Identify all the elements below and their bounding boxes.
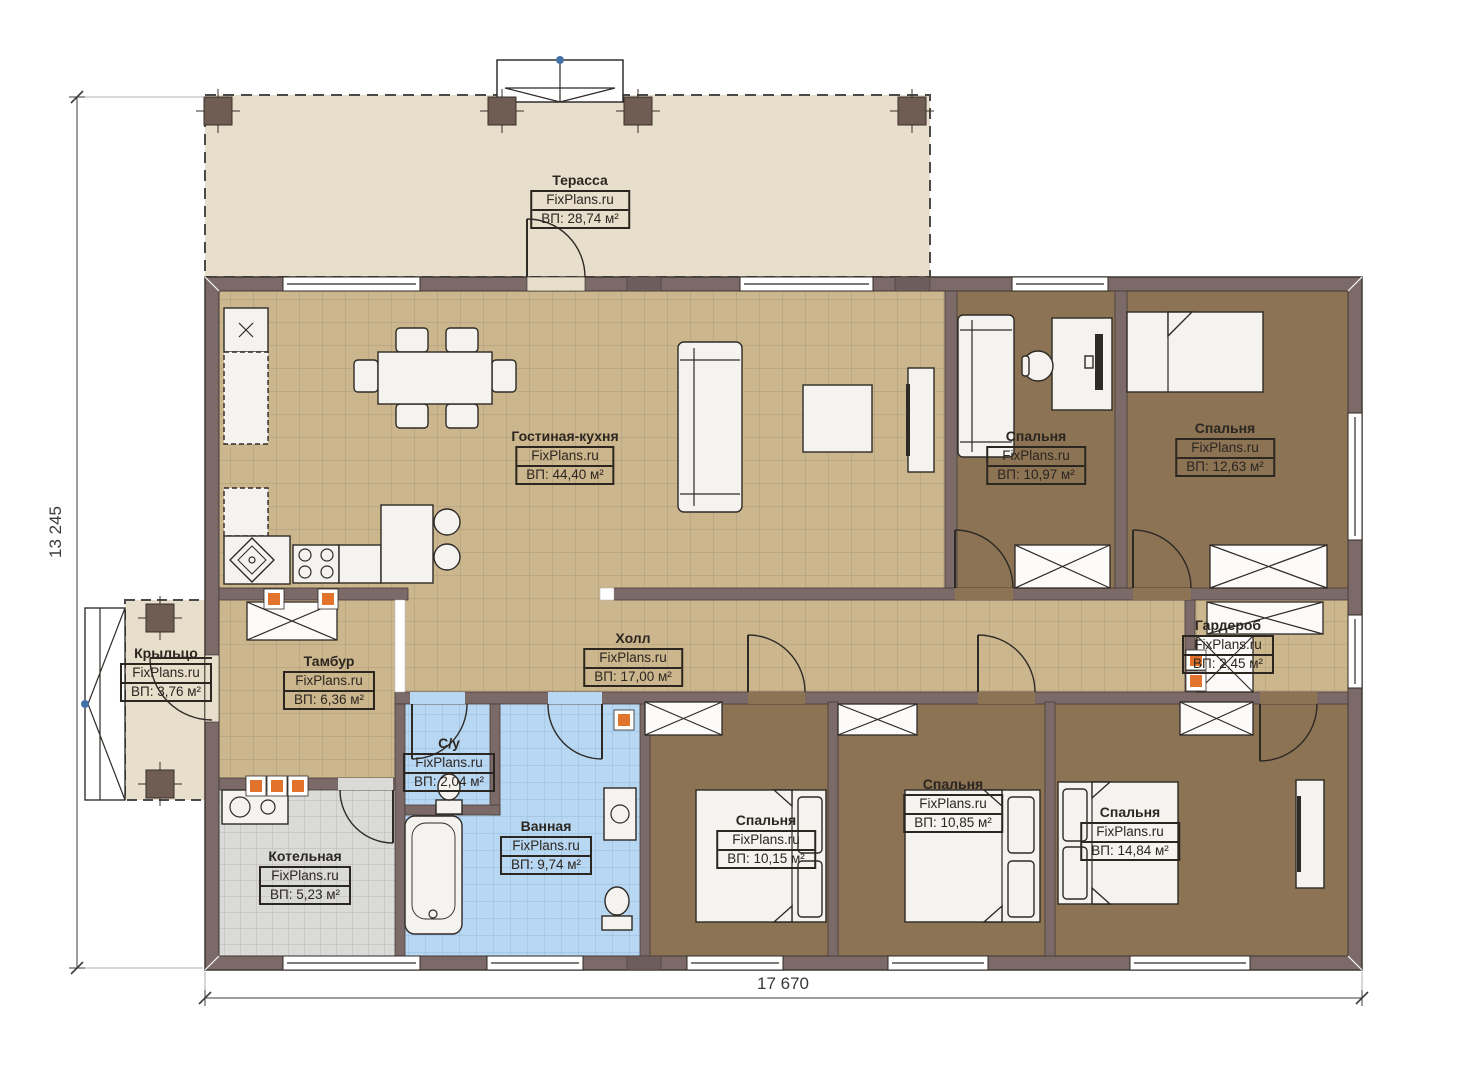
- room-name: Крыльцо: [120, 645, 212, 661]
- room-area: ВП: 28,74 м²: [532, 211, 628, 228]
- room-name: Спальня: [716, 812, 816, 828]
- room-info-box: FixPlans.ru ВП: 17,00 м²: [583, 648, 683, 687]
- terrace-stairs: [497, 56, 623, 102]
- room-area: ВП: 17,00 м²: [585, 669, 681, 686]
- pillow: [1008, 861, 1034, 917]
- wardrobe: [645, 702, 722, 735]
- room-info-box: FixPlans.ru ВП: 44,40 м²: [515, 446, 615, 485]
- room-info-box: FixPlans.ru ВП: 5,23 м²: [259, 866, 351, 905]
- room-label-boiler: Котельная FixPlans.ru ВП: 5,23 м²: [259, 848, 351, 905]
- toilet: [602, 887, 632, 930]
- stove: [293, 545, 339, 583]
- watermark: FixPlans.ru: [517, 448, 613, 467]
- room-info-box: FixPlans.ru ВП: 3,76 м²: [120, 663, 212, 702]
- bar-stool: [434, 509, 460, 535]
- office-chair: [1022, 351, 1053, 381]
- room-label-terrace: Терасса FixPlans.ru ВП: 28,74 м²: [530, 172, 630, 229]
- watermark: FixPlans.ru: [532, 192, 628, 211]
- room-info-box: FixPlans.ru ВП: 9,74 м²: [500, 836, 592, 875]
- tv-stand: [1296, 780, 1324, 888]
- tv-stand: [906, 368, 934, 472]
- terrace-area: [196, 56, 934, 277]
- fridge: [224, 308, 268, 352]
- monitor-icon: [1095, 334, 1103, 390]
- room-area: ВП: 6,36 м²: [285, 692, 373, 709]
- wardrobe: [1180, 702, 1253, 735]
- chair: [492, 360, 516, 392]
- chair: [446, 404, 478, 428]
- watermark: FixPlans.ru: [261, 868, 349, 887]
- watermark: FixPlans.ru: [988, 448, 1084, 467]
- dimension-height-label: 13 245: [46, 506, 66, 558]
- vent-icon: [614, 710, 634, 730]
- pillow: [1008, 797, 1034, 853]
- room-name: С/у: [403, 735, 495, 751]
- single-bed: [1127, 312, 1263, 392]
- room-name: Спальня: [986, 428, 1086, 444]
- bedroom-top-2-furniture: [1127, 312, 1263, 392]
- wardrobe: [1015, 545, 1110, 588]
- room-area: ВП: 12,63 м²: [1177, 459, 1273, 476]
- window: [1348, 413, 1362, 540]
- room-name: Гостиная-кухня: [511, 428, 618, 444]
- window: [888, 956, 988, 970]
- porch-steps: [81, 608, 125, 800]
- room-label-bathroom: Ванная FixPlans.ru ВП: 9,74 м²: [500, 818, 592, 875]
- room-area: ВП: 5,23 м²: [261, 887, 349, 904]
- room-name: Спальня: [1080, 804, 1180, 820]
- watermark: FixPlans.ru: [905, 796, 1001, 815]
- chair: [396, 328, 428, 352]
- vent-icon: [264, 589, 284, 609]
- room-label-bedroom-top-1: Спальня FixPlans.ru ВП: 10,97 м²: [986, 428, 1086, 485]
- room-name: Спальня: [903, 776, 1003, 792]
- room-area: ВП: 10,15 м²: [718, 851, 814, 868]
- watermark: FixPlans.ru: [718, 832, 814, 851]
- room-name: Тамбур: [283, 653, 375, 669]
- watermark: FixPlans.ru: [502, 838, 590, 857]
- washing-machine: [604, 788, 636, 840]
- watermark: FixPlans.ru: [122, 665, 210, 684]
- watermark: FixPlans.ru: [405, 755, 493, 774]
- tv-icon: [1297, 796, 1301, 872]
- pillow: [798, 861, 822, 917]
- room-area: ВП: 2,04 м²: [405, 774, 493, 791]
- room-label-wardrobe: Гардероб FixPlans.ru ВП: 2,45 м²: [1182, 617, 1274, 674]
- room-name: Спальня: [1175, 420, 1275, 436]
- kitchen-counter: [224, 352, 268, 444]
- room-info-box: FixPlans.ru ВП: 6,36 м²: [283, 671, 375, 710]
- room-info-box: FixPlans.ru ВП: 14,84 м²: [1080, 822, 1180, 861]
- chair: [354, 360, 378, 392]
- kitchen-counter: [339, 545, 381, 583]
- room-area: ВП: 2,45 м²: [1184, 656, 1272, 673]
- wardrobe: [1210, 545, 1327, 588]
- tv-icon: [906, 384, 910, 456]
- room-name: Котельная: [259, 848, 351, 864]
- room-label-hall: Холл FixPlans.ru ВП: 17,00 м²: [583, 630, 683, 687]
- bathtub: [405, 816, 462, 934]
- room-area: ВП: 10,97 м²: [988, 467, 1084, 484]
- kitchen-counter: [224, 488, 268, 536]
- room-name: Холл: [583, 630, 683, 646]
- marker-dot: [81, 700, 89, 708]
- room-area: ВП: 3,76 м²: [122, 684, 210, 701]
- chair: [396, 404, 428, 428]
- wardrobe: [838, 704, 917, 735]
- floor-plan-drawing: [0, 0, 1473, 1080]
- room-name: Гардероб: [1182, 617, 1274, 633]
- desk: [1052, 318, 1112, 410]
- room-info-box: FixPlans.ru ВП: 12,63 м²: [1175, 438, 1275, 477]
- window: [1348, 615, 1362, 688]
- room-label-bedroom-bot-2: Спальня FixPlans.ru ВП: 10,85 м²: [903, 776, 1003, 833]
- watermark: FixPlans.ru: [285, 673, 373, 692]
- room-info-box: FixPlans.ru ВП: 2,45 м²: [1182, 635, 1274, 674]
- room-area: ВП: 44,40 м²: [517, 467, 613, 484]
- kitchen-sink: [224, 536, 290, 584]
- room-label-vestibule: Тамбур FixPlans.ru ВП: 6,36 м²: [283, 653, 375, 710]
- dining-table: [378, 352, 492, 404]
- floor-plan-canvas: Терасса FixPlans.ru ВП: 28,74 м² Гостина…: [0, 0, 1473, 1080]
- room-label-living-kitchen: Гостиная-кухня FixPlans.ru ВП: 44,40 м²: [511, 428, 618, 485]
- window: [487, 956, 583, 970]
- window: [283, 277, 420, 291]
- coffee-table: [803, 385, 872, 452]
- room-label-bedroom-top-2: Спальня FixPlans.ru ВП: 12,63 м²: [1175, 420, 1275, 477]
- bar-stool: [434, 544, 460, 570]
- room-name: Ванная: [500, 818, 592, 834]
- room-info-box: FixPlans.ru ВП: 10,97 м²: [986, 446, 1086, 485]
- room-info-box: FixPlans.ru ВП: 28,74 м²: [530, 190, 630, 229]
- vent-icon: [288, 776, 308, 796]
- sofa: [678, 342, 742, 512]
- vent-icon: [246, 776, 266, 796]
- kitchen-island: [381, 505, 433, 583]
- watermark: FixPlans.ru: [1177, 440, 1273, 459]
- room-label-bedroom-bot-1: Спальня FixPlans.ru ВП: 10,15 м²: [716, 812, 816, 869]
- dimension-width-label: 17 670: [757, 974, 809, 994]
- room-area: ВП: 10,85 м²: [905, 815, 1001, 832]
- room-info-box: FixPlans.ru ВП: 10,85 м²: [903, 794, 1003, 833]
- room-label-bedroom-bot-3: Спальня FixPlans.ru ВП: 14,84 м²: [1080, 804, 1180, 861]
- vent-icon: [318, 589, 338, 609]
- room-area: ВП: 14,84 м²: [1082, 843, 1178, 860]
- marker-dot: [556, 56, 564, 64]
- room-name: Терасса: [530, 172, 630, 188]
- vent-icon: [267, 776, 287, 796]
- window: [740, 277, 873, 291]
- watermark: FixPlans.ru: [1184, 637, 1272, 656]
- room-label-porch: Крыльцо FixPlans.ru ВП: 3,76 м²: [120, 645, 212, 702]
- room-info-box: FixPlans.ru ВП: 10,15 м²: [716, 830, 816, 869]
- window: [1130, 956, 1250, 970]
- watermark: FixPlans.ru: [585, 650, 681, 669]
- window: [1012, 277, 1108, 291]
- window: [687, 956, 783, 970]
- room-area: ВП: 9,74 м²: [502, 857, 590, 874]
- chair: [446, 328, 478, 352]
- room-label-wc: С/у FixPlans.ru ВП: 2,04 м²: [403, 735, 495, 792]
- watermark: FixPlans.ru: [1082, 824, 1178, 843]
- room-info-box: FixPlans.ru ВП: 2,04 м²: [403, 753, 495, 792]
- window: [283, 956, 420, 970]
